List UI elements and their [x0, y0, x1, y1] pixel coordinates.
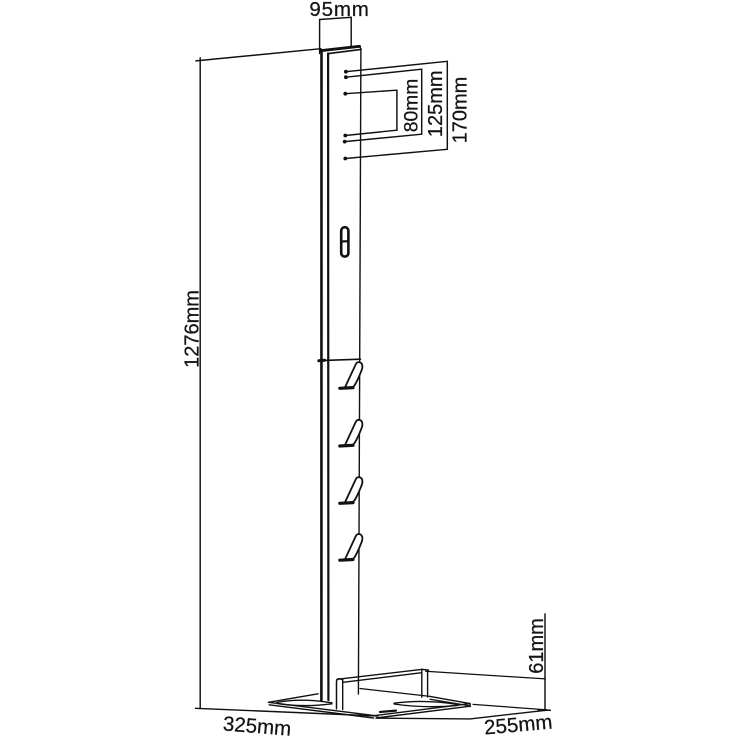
- svg-text:95mm: 95mm: [309, 0, 369, 21]
- svg-text:80mm: 80mm: [401, 79, 422, 133]
- svg-text:170mm: 170mm: [450, 77, 472, 144]
- svg-text:125mm: 125mm: [425, 70, 447, 137]
- svg-text:1276mm: 1276mm: [182, 290, 204, 368]
- svg-text:61mm: 61mm: [526, 618, 548, 674]
